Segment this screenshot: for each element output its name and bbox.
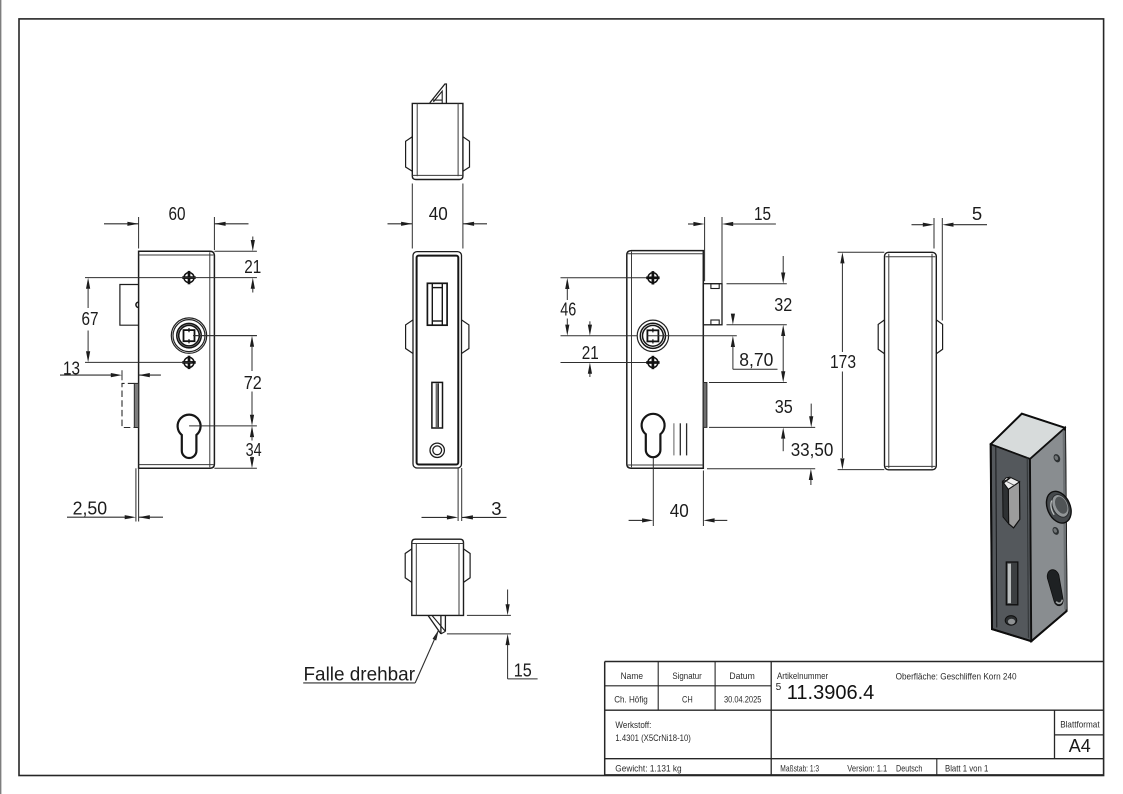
svg-text:30.04.2025: 30.04.2025 [724,695,761,706]
svg-text:Oberfläche: Geschliffen Korn: Oberfläche: Geschliffen Korn 240 [896,671,1017,682]
svg-text:Artikelnummer: Artikelnummer [777,671,828,682]
svg-text:32: 32 [774,294,792,315]
svg-text:A4: A4 [1069,736,1091,756]
svg-text:21: 21 [582,342,599,363]
svg-text:15: 15 [514,660,532,681]
svg-text:21: 21 [244,256,261,277]
svg-text:34: 34 [246,439,262,460]
svg-text:173: 173 [830,351,856,372]
svg-text:40: 40 [429,203,448,224]
svg-text:1.4301 (X5CrNi18-10): 1.4301 (X5CrNi18-10) [615,733,690,744]
svg-text:72: 72 [244,372,262,393]
svg-text:Name: Name [621,671,643,682]
svg-text:Blatt 1 von 1: Blatt 1 von 1 [945,763,988,774]
svg-text:Ch. Höfig: Ch. Höfig [614,695,648,706]
svg-text:33,50: 33,50 [791,439,834,460]
svg-text:CH: CH [682,695,693,706]
svg-text:Blattformat: Blattformat [1060,720,1100,731]
svg-text:Gewicht: 1.131 kg: Gewicht: 1.131 kg [615,763,681,774]
svg-text:46: 46 [560,299,576,320]
svg-text:Maßstab: 1:3: Maßstab: 1:3 [780,763,819,774]
svg-text:2,50: 2,50 [73,498,108,519]
svg-text:60: 60 [169,203,186,224]
svg-text:5: 5 [972,203,982,224]
svg-text:3: 3 [491,498,501,519]
svg-text:Falle drehbar: Falle drehbar [304,664,416,685]
svg-text:8,70: 8,70 [739,349,773,370]
svg-text:67: 67 [82,308,99,329]
svg-text:Datum: Datum [729,671,754,682]
svg-text:35: 35 [775,396,793,417]
svg-text:Werkstoff:: Werkstoff: [615,720,651,731]
svg-text:Signatur: Signatur [672,671,701,682]
svg-text:Version: 1.1: Version: 1.1 [847,763,887,774]
svg-text:15: 15 [754,203,771,224]
svg-text:Deutsch: Deutsch [896,763,922,774]
svg-text:13: 13 [63,357,80,378]
svg-text:40: 40 [670,500,689,521]
